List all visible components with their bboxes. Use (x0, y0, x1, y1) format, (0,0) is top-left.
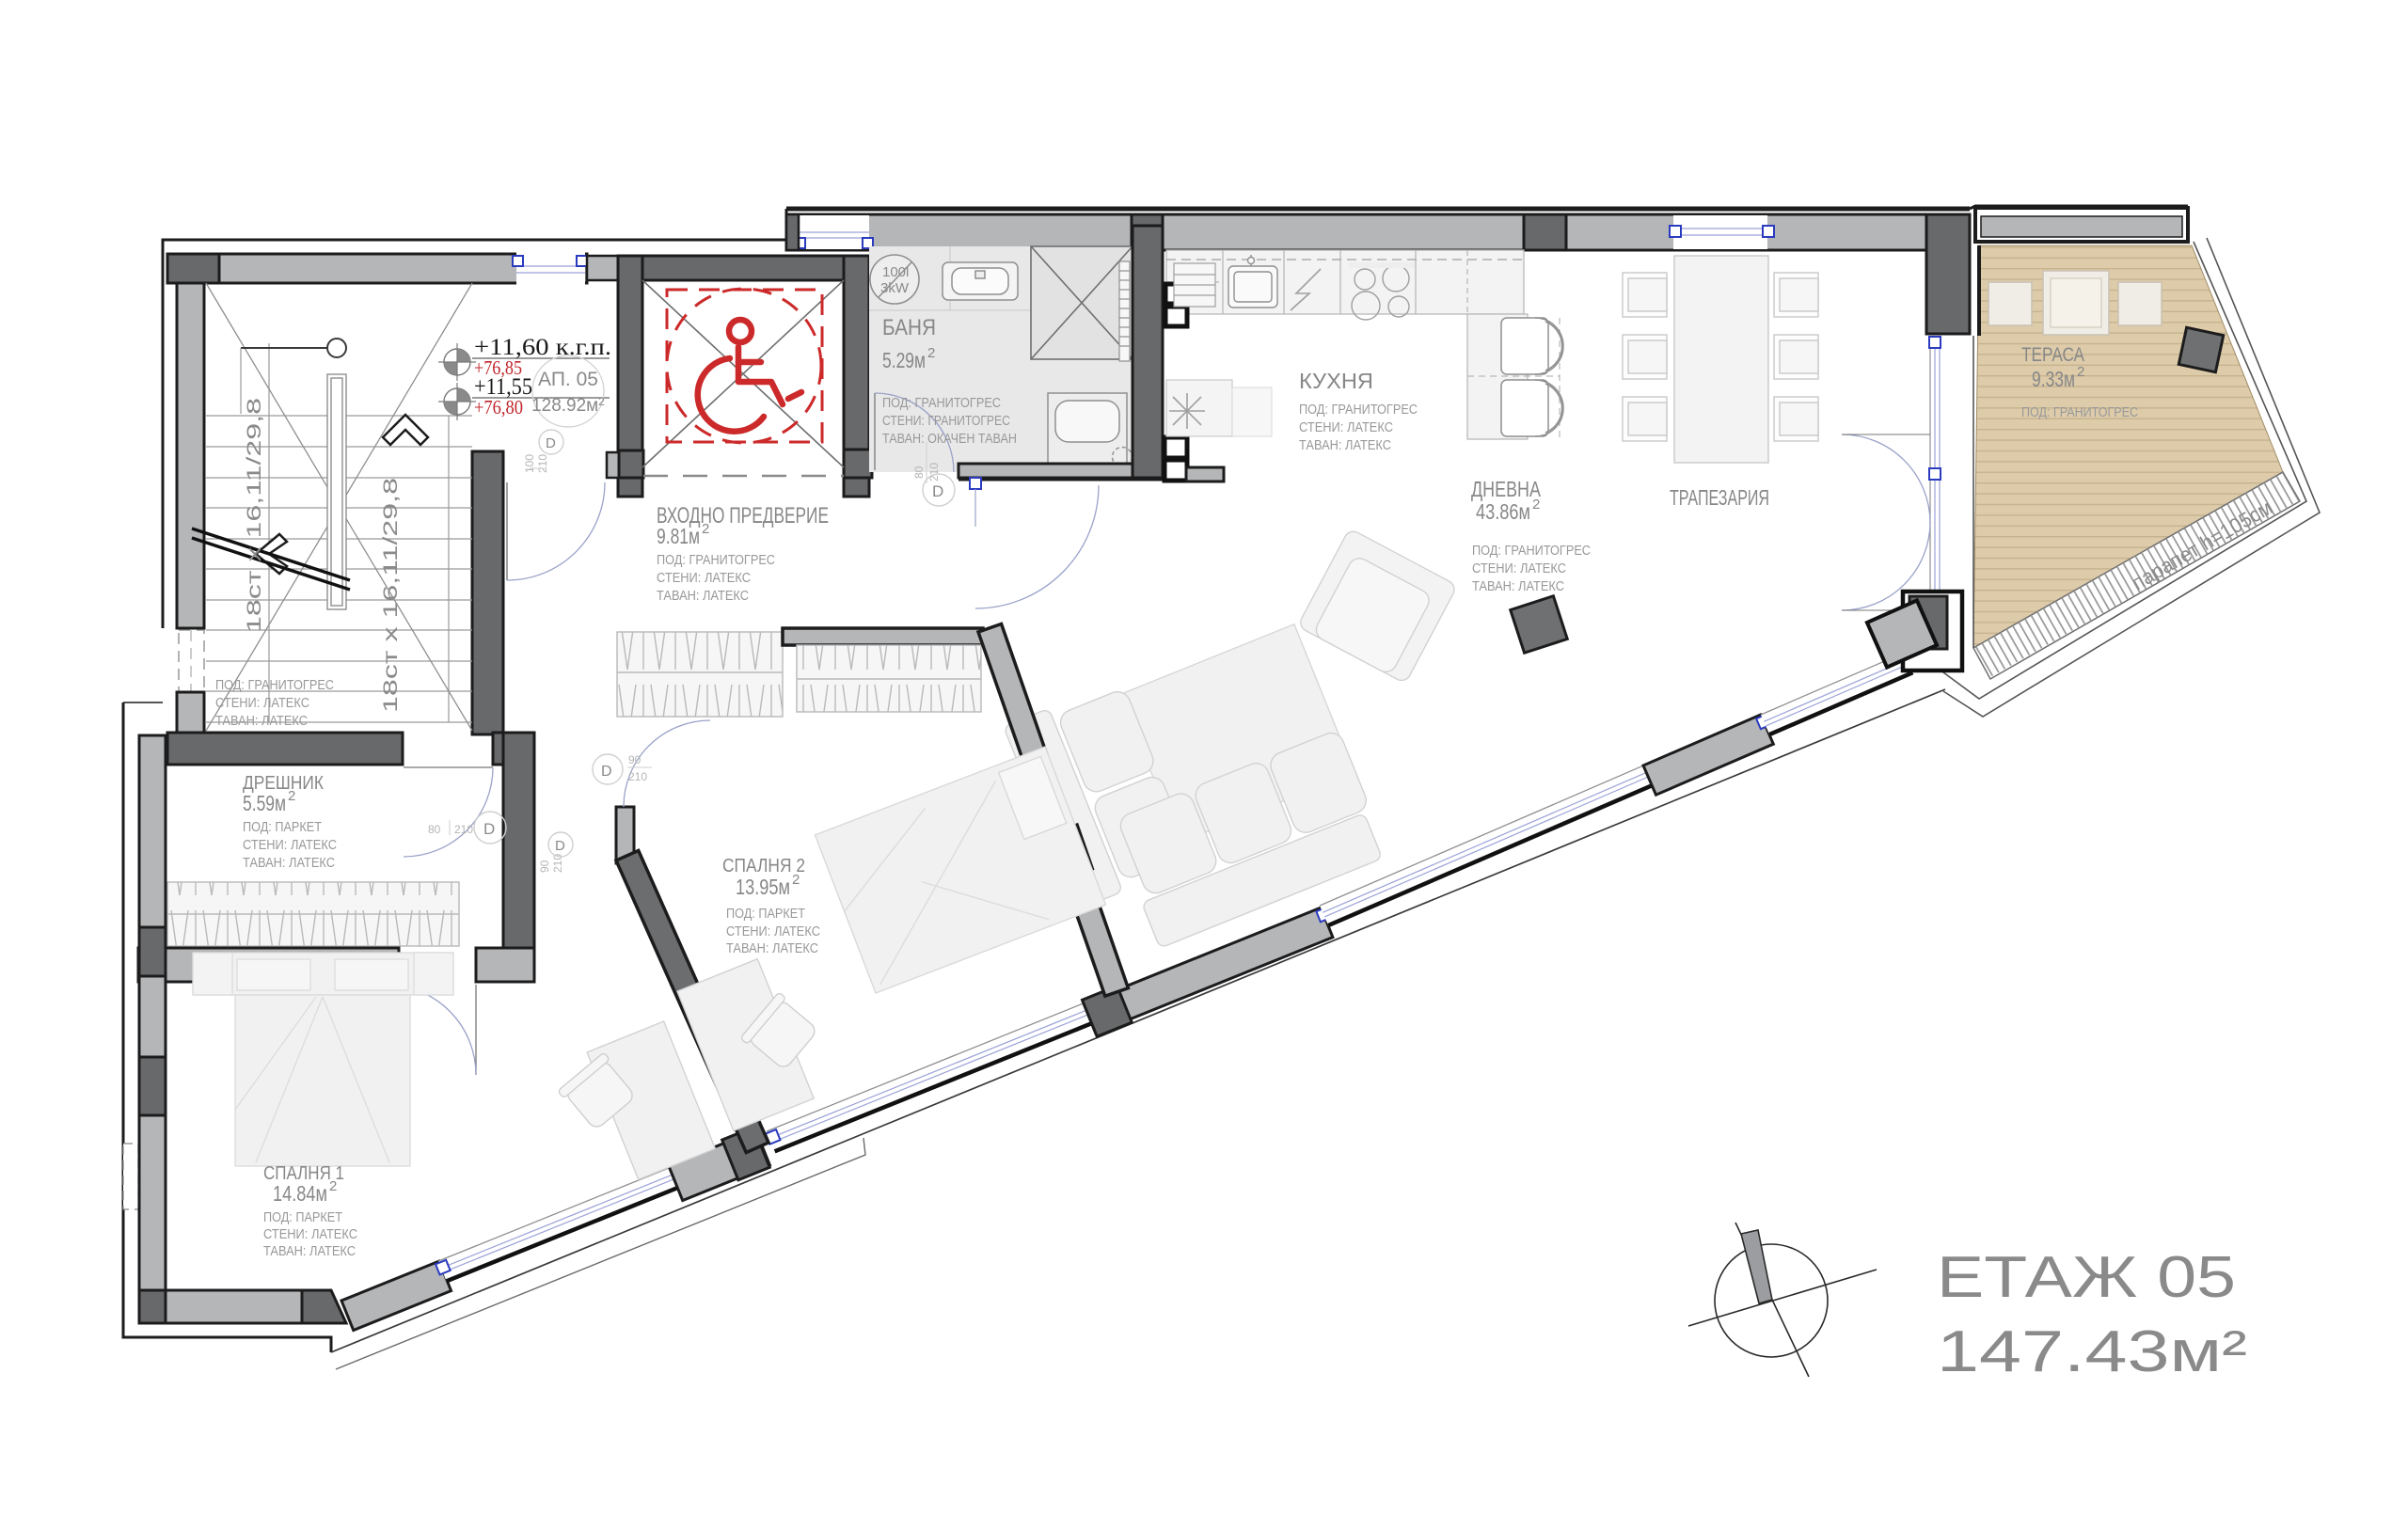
svg-text:ТАВАН: ЛАТЕКС: ТАВАН: ЛАТЕКС (263, 1244, 356, 1259)
svg-text:БАНЯ: БАНЯ (882, 315, 936, 340)
svg-text:5.29м: 5.29м (882, 348, 926, 372)
svg-text:3kW: 3kW (880, 280, 910, 296)
svg-text:ТАВАН: ЛАТЕКС: ТАВАН: ЛАТЕКС (243, 856, 335, 871)
svg-text:ТАВАН: ЛАТЕКС: ТАВАН: ЛАТЕКС (1299, 438, 1391, 453)
svg-text:СТЕНИ: ЛАТЕКС: СТЕНИ: ЛАТЕКС (657, 571, 751, 586)
svg-text:2: 2 (927, 345, 935, 361)
svg-text:СТЕНИ: ЛАТЕКС: СТЕНИ: ЛАТЕКС (263, 1227, 357, 1242)
svg-text:210: 210 (454, 823, 473, 836)
svg-text:D: D (601, 764, 612, 780)
svg-text:18ст x 16,11/29,8: 18ст x 16,11/29,8 (244, 398, 265, 633)
svg-text:2: 2 (1532, 497, 1540, 513)
svg-text:80: 80 (912, 466, 926, 479)
svg-text:147.43м²: 147.43м² (1937, 1319, 2247, 1384)
svg-text:90: 90 (628, 753, 642, 766)
svg-text:2: 2 (792, 872, 800, 888)
svg-text:СТЕНИ: ЛАТЕКС: СТЕНИ: ЛАТЕКС (243, 838, 337, 853)
svg-text:100l: 100l (882, 264, 909, 280)
svg-text:ПОД: ПАРКЕТ: ПОД: ПАРКЕТ (726, 907, 805, 922)
svg-text:АП. 05: АП. 05 (538, 369, 598, 390)
svg-text:210: 210 (628, 770, 647, 783)
svg-text:+76,80: +76,80 (474, 396, 523, 418)
svg-text:210: 210 (536, 454, 549, 473)
svg-text:13.95м: 13.95м (736, 875, 790, 899)
svg-text:5.59м: 5.59м (243, 791, 286, 815)
svg-text:ПОД: ГРАНИТОГРЕС: ПОД: ГРАНИТОГРЕС (2021, 405, 2138, 420)
svg-text:210: 210 (927, 463, 941, 481)
svg-text:ПОД: ГРАНИТОГРЕС: ПОД: ГРАНИТОГРЕС (1299, 402, 1418, 418)
svg-text:18ст x 16,11/29,8: 18ст x 16,11/29,8 (380, 478, 402, 713)
svg-text:90: 90 (538, 860, 551, 873)
svg-text:ПОД: ПАРКЕТ: ПОД: ПАРКЕТ (243, 820, 322, 835)
svg-text:D: D (546, 435, 556, 451)
svg-text:ПОД: ГРАНИТОГРЕС: ПОД: ГРАНИТОГРЕС (657, 553, 775, 568)
svg-text:9.81м: 9.81м (657, 524, 700, 548)
svg-text:2: 2 (288, 788, 295, 804)
svg-text:ЕТАЖ 05: ЕТАЖ 05 (1937, 1245, 2236, 1310)
svg-text:43.86м: 43.86м (1476, 499, 1530, 524)
svg-text:СТЕНИ: ЛАТЕКС: СТЕНИ: ЛАТЕКС (1299, 420, 1393, 435)
svg-text:ТАВАН: ЛАТЕКС: ТАВАН: ЛАТЕКС (726, 941, 818, 956)
svg-text:128.92м2: 128.92м2 (531, 395, 605, 416)
svg-text:80: 80 (428, 823, 441, 836)
svg-text:ДНЕВНА: ДНЕВНА (1471, 477, 1542, 501)
svg-text:ПОД: ГРАНИТОГРЕС: ПОД: ГРАНИТОГРЕС (882, 396, 1001, 411)
svg-text:14.84м: 14.84м (273, 1181, 327, 1206)
svg-text:СТЕНИ: ЛАТЕКС: СТЕНИ: ЛАТЕКС (726, 924, 820, 939)
svg-text:ТАВАН: ЛАТЕКС: ТАВАН: ЛАТЕКС (1472, 579, 1564, 594)
svg-text:D: D (483, 820, 495, 838)
svg-text:ПОД: ПАРКЕТ: ПОД: ПАРКЕТ (263, 1210, 342, 1225)
svg-text:ТРАПЕЗАРИЯ: ТРАПЕЗАРИЯ (1670, 485, 1769, 510)
svg-text:ТАВАН: ЛАТЕКС: ТАВАН: ЛАТЕКС (215, 714, 308, 729)
svg-text:ПОД: ГРАНИТОГРЕС: ПОД: ГРАНИТОГРЕС (215, 678, 334, 693)
svg-text:ТАВАН: ЛАТЕКС: ТАВАН: ЛАТЕКС (657, 589, 749, 604)
svg-text:КУХНЯ: КУХНЯ (1299, 369, 1373, 393)
svg-text:2: 2 (702, 521, 709, 537)
svg-text:2: 2 (329, 1178, 337, 1194)
svg-text:9.33м: 9.33м (2032, 367, 2075, 391)
svg-text:ТЕРАСА: ТЕРАСА (2021, 344, 2084, 366)
svg-text:2: 2 (2077, 364, 2084, 380)
svg-text:СТЕНИ: ЛАТЕКС: СТЕНИ: ЛАТЕКС (1472, 561, 1566, 576)
svg-text:100: 100 (523, 454, 536, 473)
svg-text:ТАВАН: ОКАЧЕН ТАВАН: ТАВАН: ОКАЧЕН ТАВАН (882, 432, 1017, 447)
svg-text:D: D (932, 482, 943, 500)
svg-text:СТЕНИ: ЛАТЕКС: СТЕНИ: ЛАТЕКС (215, 696, 309, 711)
svg-text:D: D (555, 838, 565, 854)
svg-text:СТЕНИ: ГРАНИТОГРЕС: СТЕНИ: ГРАНИТОГРЕС (882, 414, 1010, 429)
svg-text:ПОД: ГРАНИТОГРЕС: ПОД: ГРАНИТОГРЕС (1472, 544, 1591, 559)
